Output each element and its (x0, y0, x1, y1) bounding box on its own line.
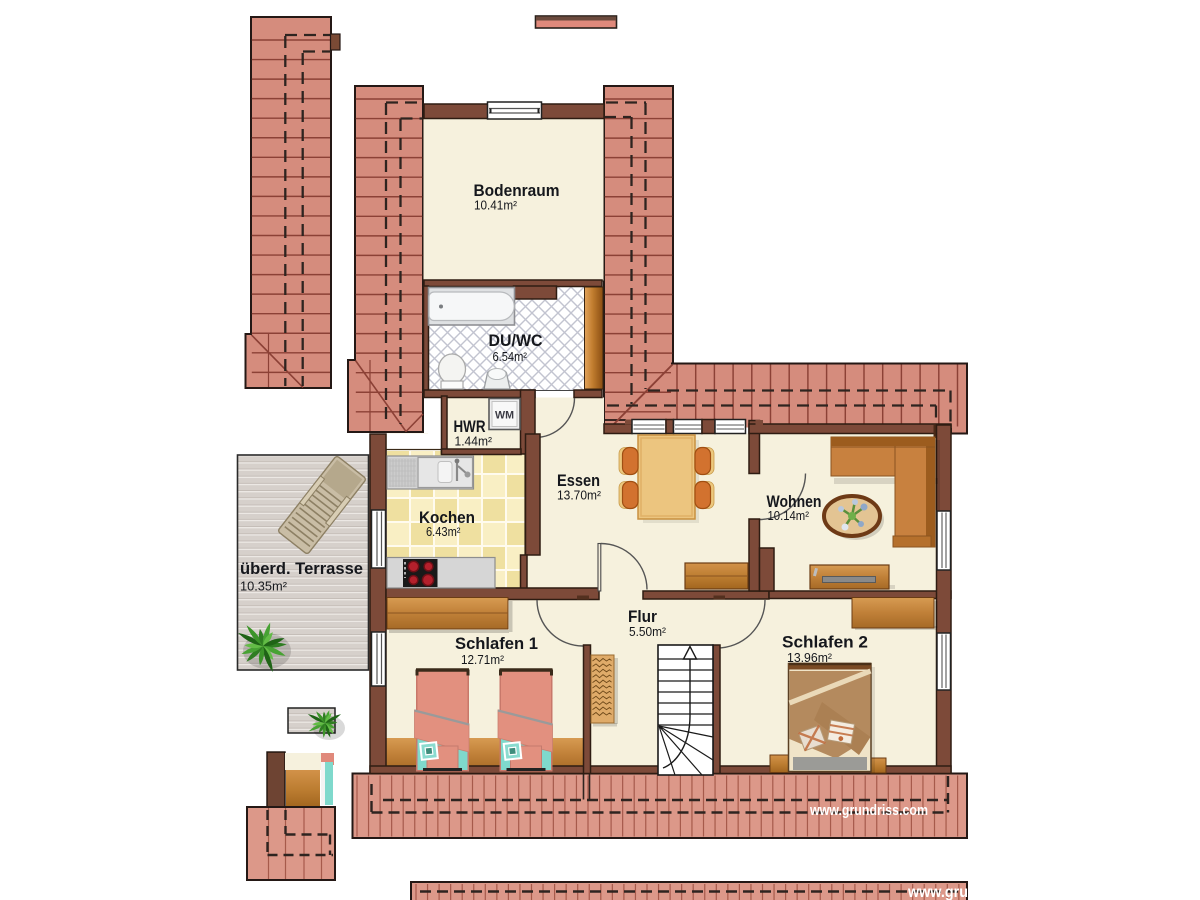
svg-text:1.44m²: 1.44m² (455, 435, 493, 449)
svg-text:13.96m²: 13.96m² (787, 651, 832, 665)
svg-text:überd. Terrasse: überd. Terrasse (240, 560, 363, 578)
svg-text:HWR: HWR (454, 418, 486, 436)
svg-text:Bodenraum: Bodenraum (474, 182, 560, 200)
svg-text:10.14m²: 10.14m² (768, 509, 810, 523)
svg-text:Flur: Flur (628, 608, 658, 626)
svg-text:www.grundriss.com: www.grundriss.com (809, 803, 928, 819)
svg-text:Schlafen 1: Schlafen 1 (455, 635, 538, 653)
svg-text:DU/WC: DU/WC (489, 332, 543, 350)
svg-text:Schlafen 2: Schlafen 2 (782, 634, 868, 652)
svg-text:WM: WM (495, 410, 514, 422)
svg-text:6.43m²: 6.43m² (426, 525, 461, 539)
svg-text:www.gru: www.gru (907, 884, 968, 900)
svg-text:13.70m²: 13.70m² (557, 489, 601, 503)
svg-text:6.54m²: 6.54m² (493, 350, 528, 364)
svg-text:10.35m²: 10.35m² (240, 580, 287, 594)
svg-text:10.41m²: 10.41m² (474, 199, 517, 213)
svg-text:5.50m²: 5.50m² (629, 625, 666, 639)
svg-text:Essen: Essen (557, 472, 600, 490)
svg-text:12.71m²: 12.71m² (461, 653, 504, 667)
